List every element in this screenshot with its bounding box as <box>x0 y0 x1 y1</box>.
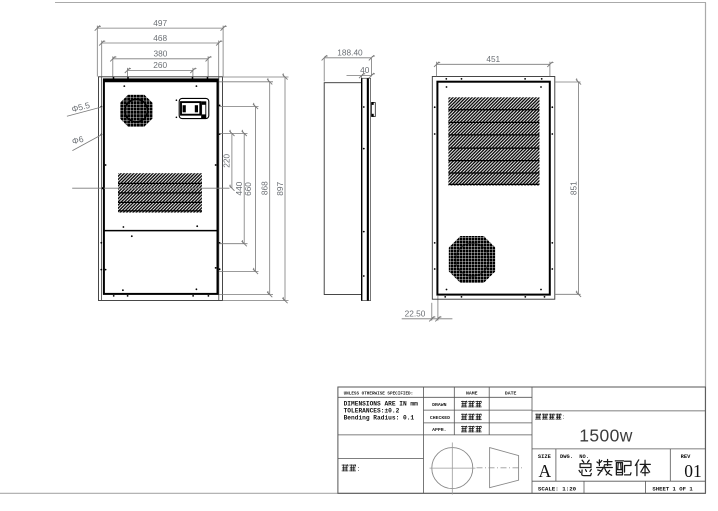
svg-text:897: 897 <box>275 181 285 195</box>
svg-text:868: 868 <box>260 181 270 195</box>
svg-text:REV: REV <box>681 454 691 460</box>
svg-text:497: 497 <box>153 18 167 28</box>
svg-text:22.50: 22.50 <box>405 309 426 319</box>
svg-text:DRAWN: DRAWN <box>432 402 447 408</box>
svg-text:188.40: 188.40 <box>337 47 363 57</box>
svg-text:220: 220 <box>222 153 232 167</box>
svg-text:TOLERANCES:±0.2: TOLERANCES:±0.2 <box>344 408 400 415</box>
svg-text:UNLESS OTHERWISE SPECIFIED:: UNLESS OTHERWISE SPECIFIED: <box>344 391 414 396</box>
svg-text:Bending Radius: 0.1: Bending Radius: 0.1 <box>344 415 415 422</box>
svg-text:NAME: NAME <box>466 390 478 396</box>
svg-text:468: 468 <box>153 33 167 43</box>
svg-text:380: 380 <box>154 49 168 59</box>
svg-text:DIMENSIONS ARE IN mm: DIMENSIONS ARE IN mm <box>344 401 419 408</box>
svg-text:A: A <box>538 461 551 481</box>
svg-text:DWG.: DWG. <box>560 454 573 460</box>
svg-text:660: 660 <box>243 182 253 196</box>
svg-text:CHECKED: CHECKED <box>430 415 450 421</box>
svg-text:NO.: NO. <box>579 454 589 460</box>
svg-text:SIZE: SIZE <box>538 454 552 460</box>
svg-text:SHEET 1 OF 1: SHEET 1 OF 1 <box>652 486 693 493</box>
svg-text:260: 260 <box>153 60 167 70</box>
svg-text:40: 40 <box>360 65 370 75</box>
svg-text:SCALE: 1:20: SCALE: 1:20 <box>538 486 577 493</box>
svg-text::: : <box>358 466 360 473</box>
svg-text:DATE: DATE <box>505 390 517 396</box>
svg-text:451: 451 <box>486 54 500 64</box>
svg-text:851: 851 <box>568 181 578 195</box>
svg-text:01: 01 <box>684 461 702 481</box>
svg-text:APPR.: APPR. <box>432 427 446 433</box>
svg-text:1500w: 1500w <box>579 425 633 445</box>
